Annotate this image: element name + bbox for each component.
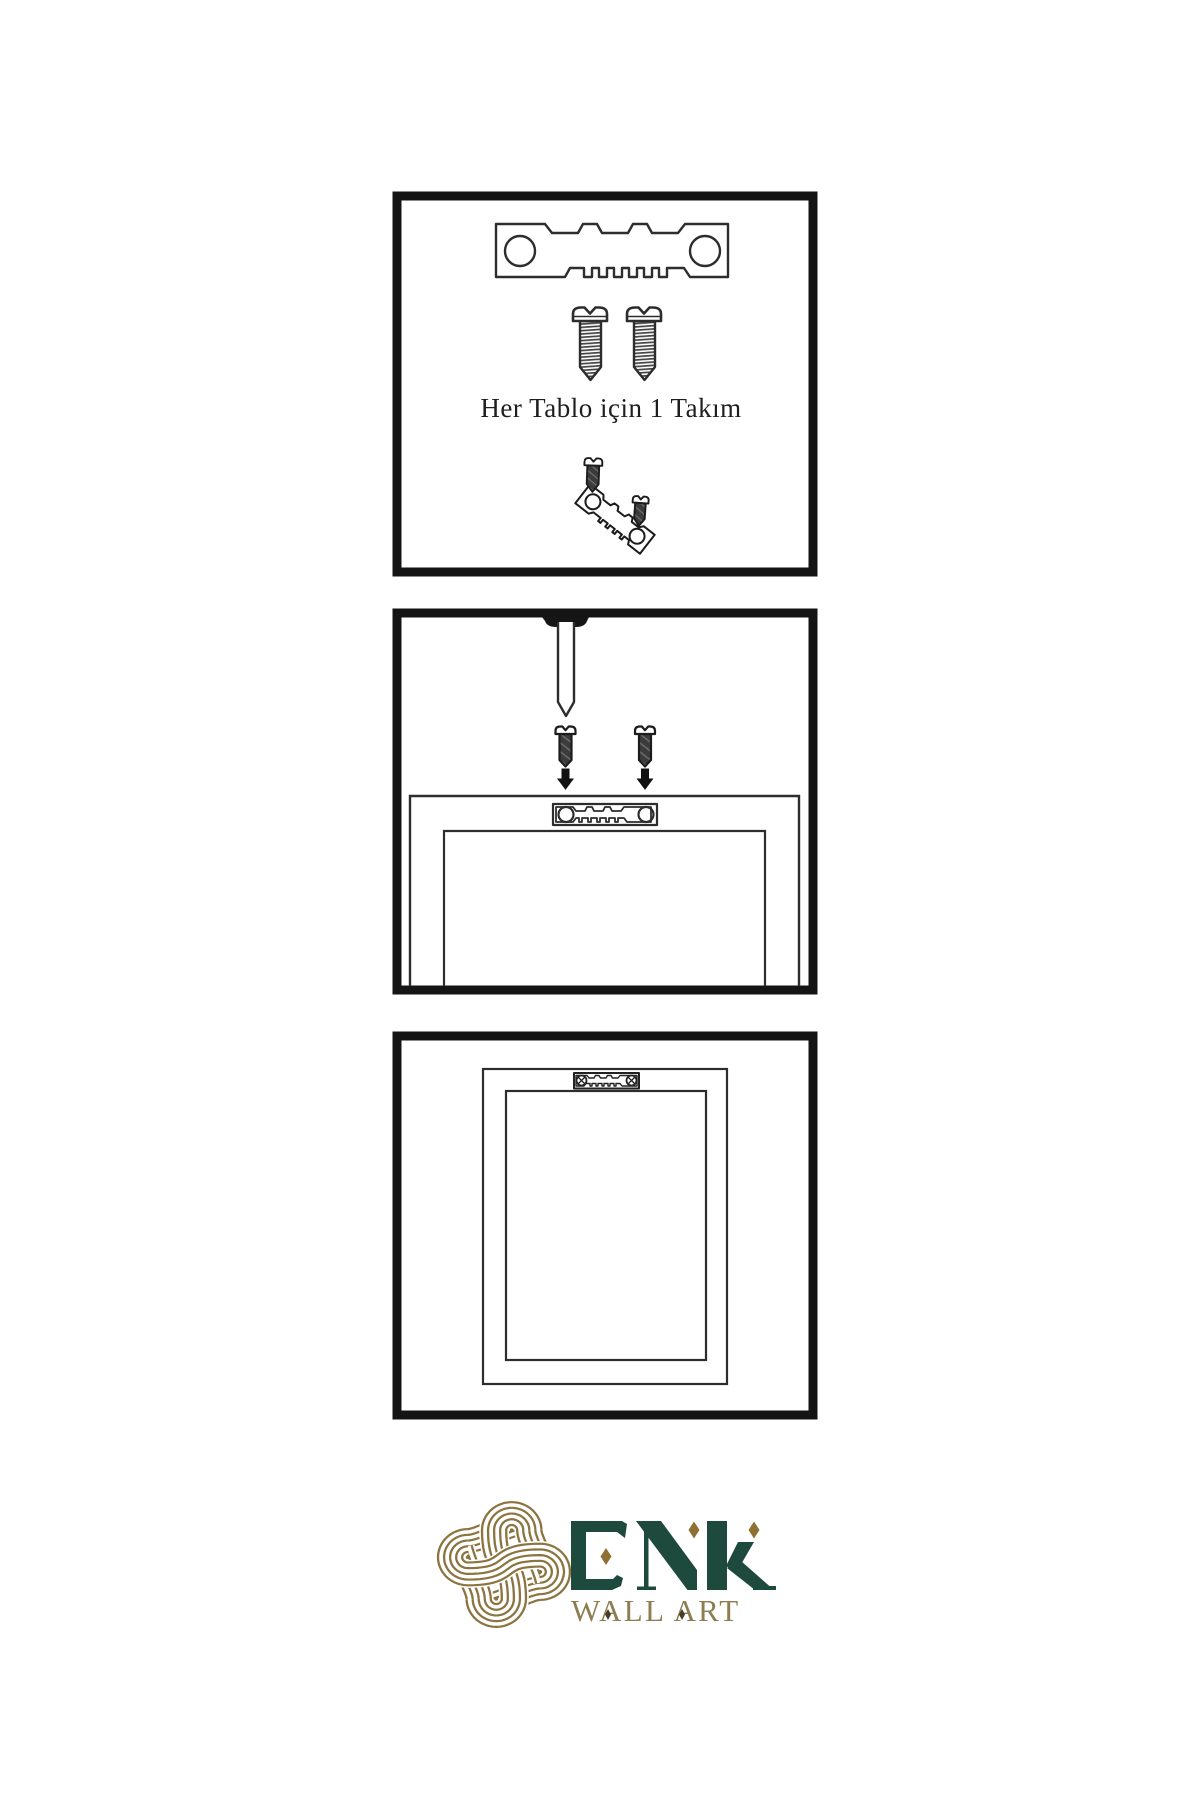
svg-text:Her Tablo için 1 Takım: Her Tablo için 1 Takım xyxy=(480,393,741,423)
svg-text:WALL ART: WALL ART xyxy=(571,1593,741,1628)
